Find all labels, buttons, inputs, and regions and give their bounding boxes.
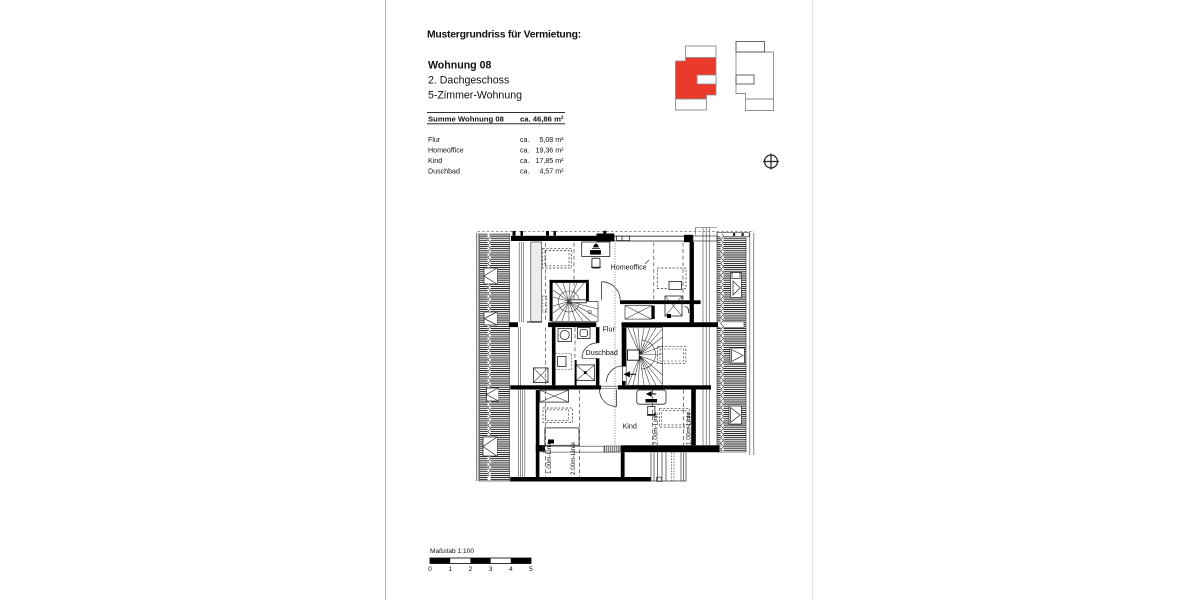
svg-text:ca.: ca. [520, 157, 529, 165]
svg-text:1.00m-Linie: 1.00m-Linie [686, 412, 693, 445]
svg-text:1: 1 [448, 566, 452, 573]
svg-text:2.00m-Linie: 2.00m-Linie [570, 442, 577, 475]
svg-text:4: 4 [509, 566, 513, 573]
svg-text:2.00m-Linie: 2.00m-Linie [653, 412, 660, 445]
svg-text:Wohnung 08: Wohnung 08 [428, 60, 491, 72]
svg-text:Homeoffice: Homeoffice [428, 146, 464, 154]
svg-text:5: 5 [529, 566, 533, 573]
svg-text:Kind: Kind [623, 422, 637, 431]
svg-text:Duschbad: Duschbad [428, 167, 460, 175]
svg-text:0: 0 [428, 566, 432, 573]
svg-text:1.00m-Linie: 1.00m-Linie [546, 441, 553, 474]
svg-text:Summe Wohnung 08: Summe Wohnung 08 [428, 114, 505, 123]
svg-text:ca.: ca. [520, 167, 529, 175]
svg-text:ca.: ca. [520, 146, 529, 154]
svg-text:Maßstab 1:100: Maßstab 1:100 [430, 548, 474, 555]
svg-text:Duschbad: Duschbad [586, 348, 618, 357]
svg-text:2: 2 [469, 566, 473, 573]
svg-text:5-Zimmer-Wohnung: 5-Zimmer-Wohnung [428, 90, 522, 102]
svg-text:17,85 m²: 17,85 m² [536, 157, 565, 165]
svg-text:Flur: Flur [603, 325, 616, 334]
svg-text:Homeoffice: Homeoffice [611, 263, 647, 272]
svg-text:46,86 m²: 46,86 m² [533, 114, 564, 123]
svg-text:ca.: ca. [520, 136, 529, 144]
svg-text:Kind: Kind [428, 157, 442, 165]
svg-text:4,57 m²: 4,57 m² [539, 167, 564, 175]
svg-text:Flur: Flur [428, 136, 441, 144]
svg-text:2. Dachgeschoss: 2. Dachgeschoss [428, 75, 509, 87]
svg-text:3: 3 [489, 566, 493, 573]
svg-text:Mustergrundriss für Vermietung: Mustergrundriss für Vermietung: [427, 30, 581, 41]
svg-text:5,08 m²: 5,08 m² [539, 136, 564, 144]
svg-text:19,36 m²: 19,36 m² [536, 146, 565, 154]
svg-text:ca.: ca. [520, 114, 531, 123]
